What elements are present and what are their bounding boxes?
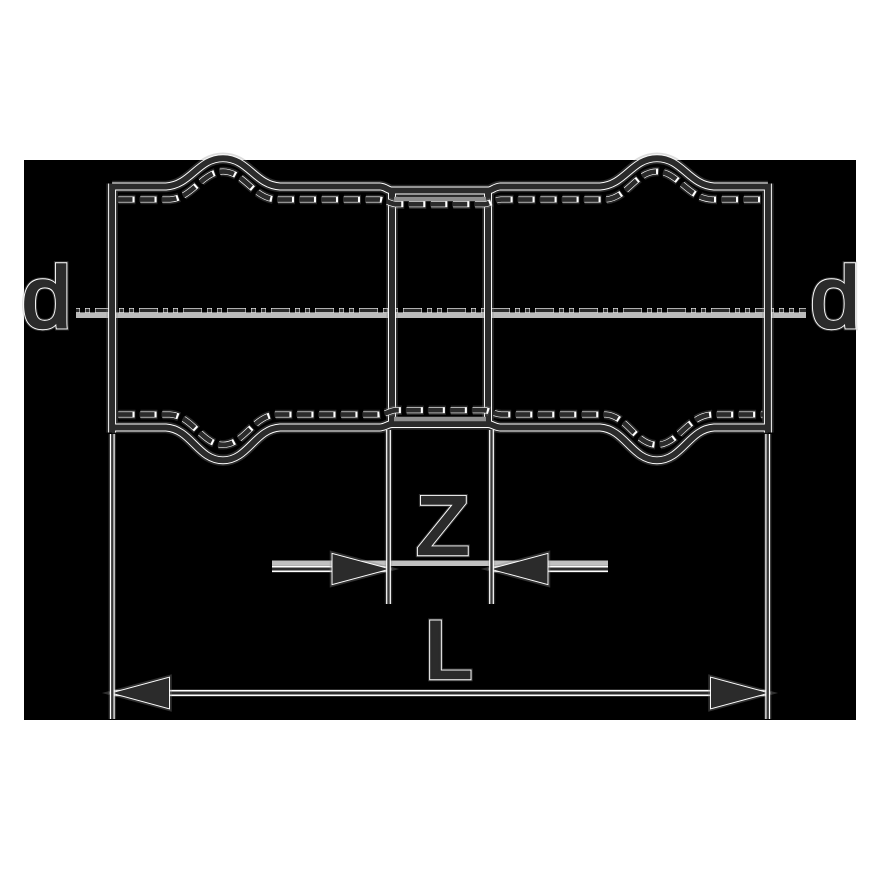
- svg-text:d: d: [811, 250, 860, 346]
- svg-text:Z: Z: [417, 480, 470, 572]
- svg-text:L: L: [425, 604, 473, 696]
- svg-text:d: d: [22, 250, 71, 346]
